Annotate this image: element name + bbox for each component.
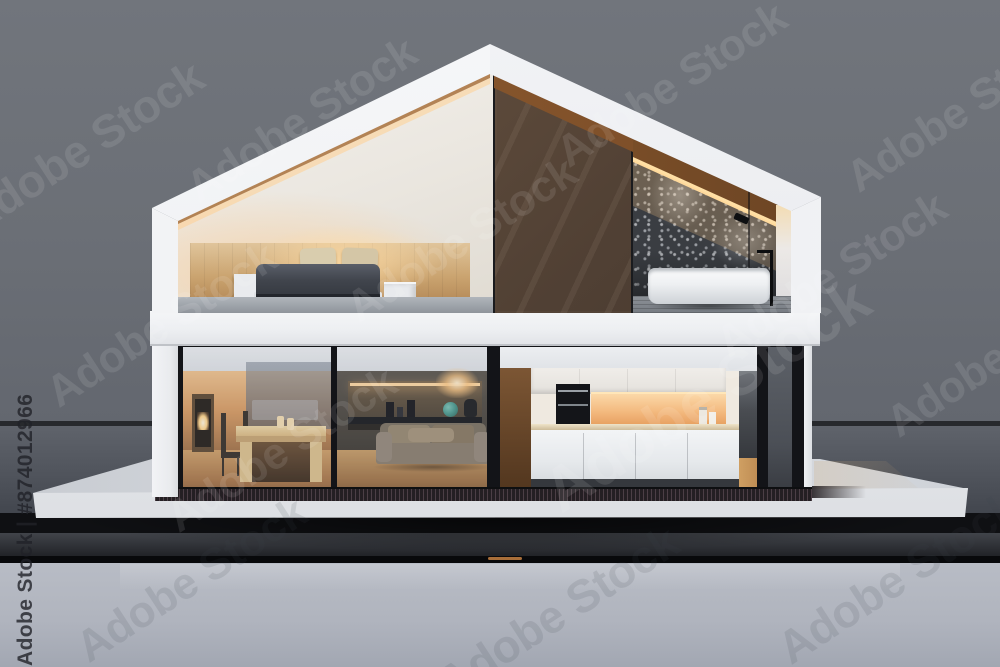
faucet: [770, 250, 773, 306]
island-door-seam: [687, 433, 688, 479]
cabinet-seam: [675, 369, 676, 393]
deck-grate-texture: [155, 489, 812, 501]
mid-floor-slab: [150, 311, 820, 346]
deck-grate-extension: [810, 486, 866, 498]
cabinet-seam: [627, 369, 628, 393]
center-mullion: [487, 343, 500, 501]
panel-edge: [493, 74, 495, 313]
bedroom-floor-slab: [176, 297, 497, 313]
glass-pane: [337, 347, 487, 487]
stock-photo-scene: Adobe Stock Adobe Stock Adobe Stock Adob…: [0, 0, 1000, 667]
glazing-mullion: [757, 343, 768, 501]
kitchen-tall-panel: [500, 368, 531, 487]
island-door-seam: [583, 433, 584, 479]
counter-canister: [709, 412, 716, 424]
faucet-spout: [757, 250, 773, 253]
oven-handle: [558, 390, 588, 392]
glass-pane: [183, 347, 331, 487]
stock-attribution-text: Adobe Stock | #874012966: [14, 388, 38, 666]
glazing-mullion: [178, 343, 183, 501]
ground-left-wall: [152, 343, 178, 497]
oven-handle: [558, 404, 588, 406]
doorway-panel: [739, 371, 757, 458]
foreground-reflection: [120, 564, 900, 590]
glass-pane: [768, 347, 792, 487]
right-frame-edge: [804, 343, 812, 501]
bathtub: [648, 268, 770, 304]
island-door-seam: [635, 433, 636, 479]
glazing-mullion: [792, 343, 804, 501]
glazing-mullion: [331, 343, 337, 501]
warm-light-reflection: [488, 557, 522, 560]
island-toe-kick: [531, 479, 739, 487]
